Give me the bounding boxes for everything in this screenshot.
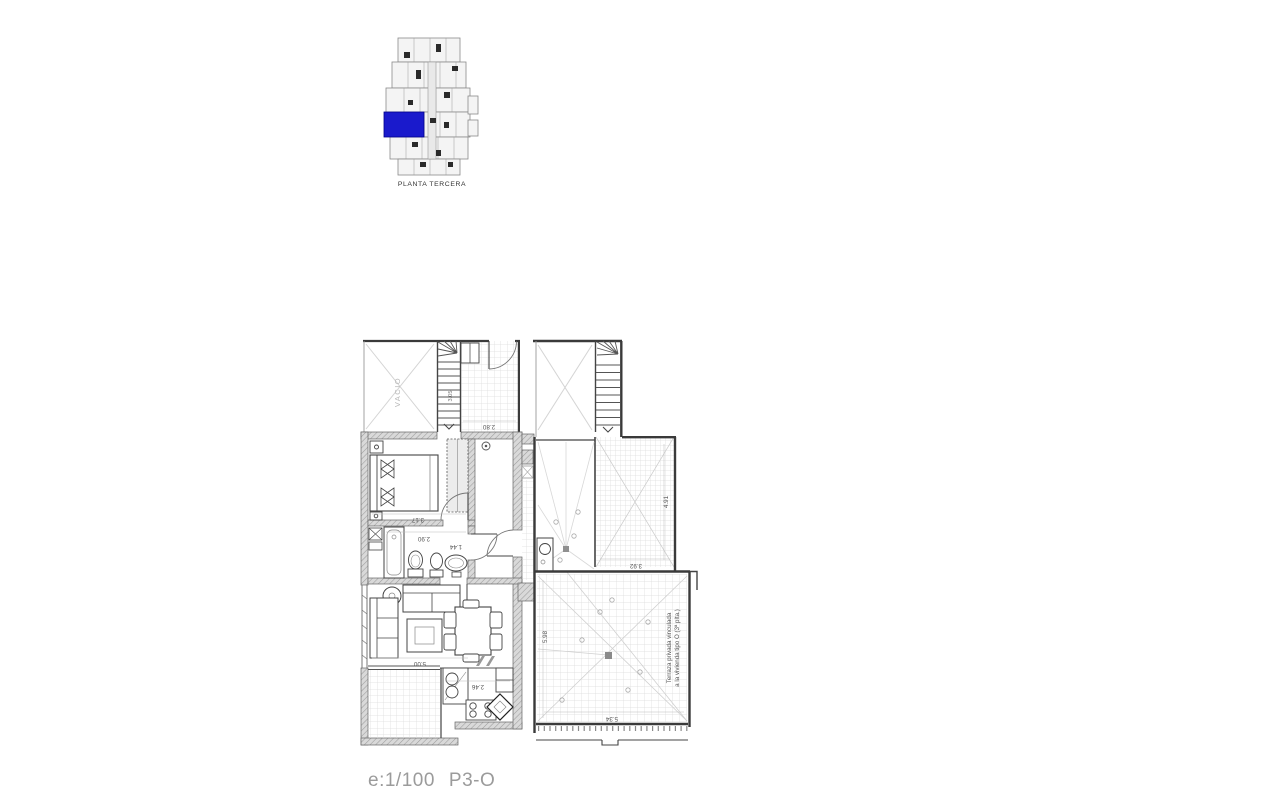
dim-bathroom: 2.90 xyxy=(417,535,430,542)
dim-kitchen: 2.46 xyxy=(471,683,484,690)
upper-terrace: 4.91 3.92 xyxy=(536,437,676,571)
ground-line xyxy=(536,740,688,745)
dim-terrace-left: 5.98 xyxy=(542,630,549,643)
exterior-detail xyxy=(522,466,534,580)
dim-terrace-upper: 3.92 xyxy=(629,562,642,569)
key-plan-label: PLANTA TERCERA xyxy=(398,181,466,188)
bed xyxy=(370,455,438,511)
stair-dim-label: 3.05 xyxy=(448,391,454,402)
wardrobe xyxy=(447,439,468,512)
terrace-fixture xyxy=(537,538,553,571)
upper-right-block xyxy=(533,341,622,437)
void-label: VACIO xyxy=(393,377,402,407)
living-room: 5.00 xyxy=(370,584,502,667)
dim-terrace-right: 4.91 xyxy=(663,495,670,508)
dim-bedroom: 3.17 xyxy=(411,516,424,523)
washer xyxy=(369,528,382,550)
scale-label: e:1/100P3-O xyxy=(368,770,495,792)
highlighted-unit xyxy=(384,112,424,137)
bidet xyxy=(430,553,443,577)
key-plan: PLANTA TERCERA xyxy=(384,38,478,188)
dim-hall: 1.44 xyxy=(449,543,462,550)
plan-sheet: PLANTA TERCERA VACIO xyxy=(0,0,1280,800)
kitchen: 2.46 xyxy=(440,668,513,720)
fridge xyxy=(496,668,513,692)
nightstand-top xyxy=(370,441,383,453)
toilet xyxy=(408,551,423,577)
floor-plan: VACIO 3.05 xyxy=(361,341,697,745)
lower-terrace xyxy=(368,666,441,738)
sink xyxy=(445,555,467,577)
living-window xyxy=(362,585,367,668)
coffee-table xyxy=(407,619,442,652)
dim-terrace-bottom: 5.34 xyxy=(605,715,618,722)
plan-code: P3-O xyxy=(449,770,495,791)
scale-value: e:1/100 xyxy=(368,770,435,791)
bathroom: 2.90 1.44 xyxy=(369,527,497,578)
dim-landing: 2.80 xyxy=(482,423,495,430)
architectural-drawing: PLANTA TERCERA VACIO xyxy=(0,0,1280,800)
kitchen-sink xyxy=(443,668,468,704)
void-cross-right xyxy=(538,345,592,430)
terrace-note-line1: Terraza privada vinculada xyxy=(666,612,673,683)
staircase-right xyxy=(596,341,622,437)
drain-upper xyxy=(563,546,569,552)
nightstand-bottom xyxy=(370,512,382,520)
ceiling-light-icon xyxy=(482,442,490,450)
upper-left-block: VACIO 3.05 xyxy=(363,341,520,432)
terrace-note-line2: a la vivienda tipo O (3ª plta.) xyxy=(674,609,681,687)
key-plan-corridor xyxy=(428,62,436,159)
bathtub xyxy=(384,527,404,578)
drain-lower xyxy=(605,652,612,659)
